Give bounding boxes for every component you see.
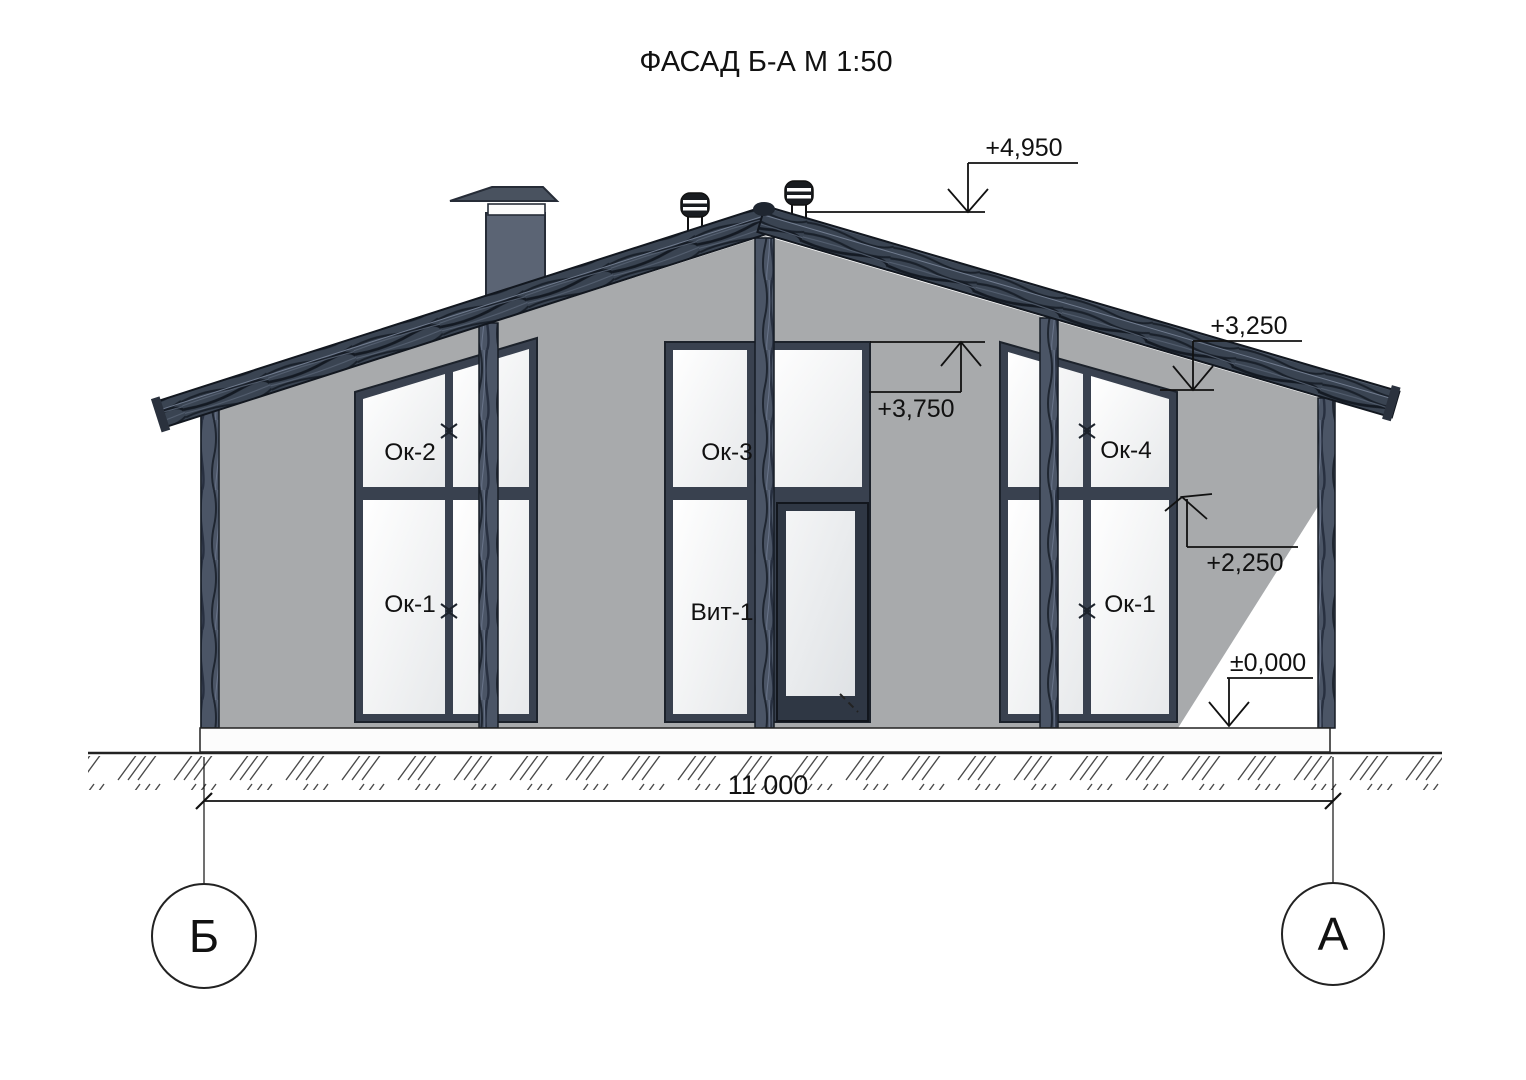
window-right-group: Ок-4 Ок-1: [1000, 342, 1177, 722]
elevation-ground-value: ±0,000: [1230, 649, 1306, 677]
corner-post-right: [1318, 398, 1335, 728]
window-label-vit1: Вит-1: [690, 599, 753, 626]
elevation-transom-value: +2,250: [1206, 549, 1283, 577]
post-center: [755, 238, 774, 728]
corner-post-left: [201, 402, 219, 728]
window-label-ok4: Ок-4: [1100, 437, 1152, 464]
drawing-title: ФАСАД Б-А М 1:50: [639, 46, 892, 78]
axis-left: Б: [152, 884, 256, 988]
elevation-window-head-value: +3,750: [877, 395, 954, 423]
facade-drawing-page: ФАСАД Б-А М 1:50 Ок-2 Ок-1 Ок-3 В: [0, 0, 1526, 1080]
ridge-cap: [753, 202, 775, 216]
axis-label-a: А: [1318, 908, 1349, 960]
axis-label-b: Б: [189, 910, 219, 962]
elevation-ridge-value: +4,950: [985, 134, 1062, 162]
window-label-ok3: Ок-3: [701, 439, 753, 466]
elevation-eave-value: +3,250: [1210, 312, 1287, 340]
entrance-door: [777, 503, 868, 721]
window-label-ok1-left: Ок-1: [384, 591, 436, 618]
plinth: [200, 728, 1330, 752]
window-left-group: Ок-2 Ок-1: [355, 338, 537, 722]
window-label-ok1-right: Ок-1: [1104, 591, 1156, 618]
post-left-mid: [479, 323, 498, 728]
chimney-cap: [450, 187, 557, 201]
axis-right: А: [1282, 883, 1384, 985]
post-right-mid: [1040, 318, 1058, 728]
dimension-width-label: 11 000: [728, 770, 809, 800]
facade-drawing: ФАСАД Б-А М 1:50 Ок-2 Ок-1 Ок-3 В: [0, 0, 1526, 1080]
window-label-ok2: Ок-2: [384, 439, 436, 466]
chimney-opening: [488, 204, 545, 215]
elevation-ridge: +4,950: [806, 134, 1078, 212]
